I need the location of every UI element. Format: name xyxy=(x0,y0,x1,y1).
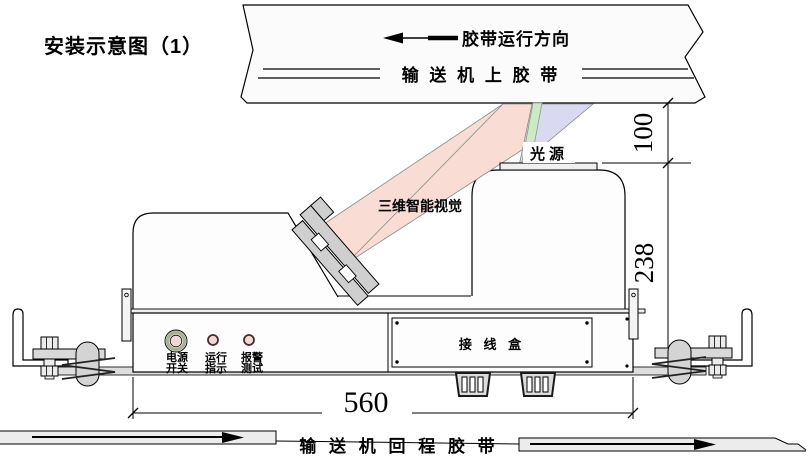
width-dimension: 560 xyxy=(128,377,638,419)
run-label-2: 指示 xyxy=(205,361,227,375)
installation-diagram: 胶带运行方向 输 送 机 上 胶 带 100 238 xyxy=(0,0,806,462)
svg-text:光源: 光源 xyxy=(529,145,568,163)
run-indicator xyxy=(208,335,218,345)
vision-camera-label: 三维智能视觉 xyxy=(378,198,462,214)
diagram-canvas: 胶带运行方向 输 送 机 上 胶 带 100 238 xyxy=(0,0,806,462)
control-panel: 电源 开关 运行 指示 报警 测试 xyxy=(165,330,263,375)
upper-belt-shape xyxy=(241,5,705,103)
alarm-label-1: 报警 xyxy=(241,350,263,364)
upper-belt-banner: 胶带运行方向 输 送 机 上 胶 带 xyxy=(241,5,705,103)
right-side-plate xyxy=(629,289,638,339)
power-label-2: 开关 xyxy=(166,361,188,375)
dim-100-label: 100 xyxy=(628,113,658,154)
power-switch-indicator xyxy=(165,330,187,352)
diagram-title: 安装示意图（1） xyxy=(44,34,203,58)
cable-gland-left xyxy=(456,373,490,396)
dim-238-label: 238 xyxy=(629,243,659,284)
belt-direction-label: 胶带运行方向 xyxy=(462,29,570,49)
light-source-label: 光源 xyxy=(523,142,575,163)
lower-belt-label: 输 送 机 回 程 胶 带 xyxy=(299,436,498,456)
power-label-1: 电源 xyxy=(166,350,188,364)
lower-belt: 输 送 机 回 程 胶 带 xyxy=(0,431,806,456)
alarm-indicator xyxy=(244,335,254,345)
junction-box-label: 接 线 盒 xyxy=(459,337,525,352)
dim-560-label: 560 xyxy=(344,386,389,419)
left-damper-capsule xyxy=(76,342,99,386)
light-window-plate xyxy=(500,163,597,170)
alarm-label-2: 测试 xyxy=(241,361,263,375)
left-side-plate xyxy=(122,289,131,341)
top-rail xyxy=(128,309,645,313)
junction-box-panel: 接 线 盒 xyxy=(392,318,592,367)
run-label-1: 运行 xyxy=(205,350,227,364)
upper-belt-label: 输 送 机 上 胶 带 xyxy=(402,65,561,85)
right-housing xyxy=(472,170,625,309)
cable-gland-right xyxy=(521,373,555,396)
